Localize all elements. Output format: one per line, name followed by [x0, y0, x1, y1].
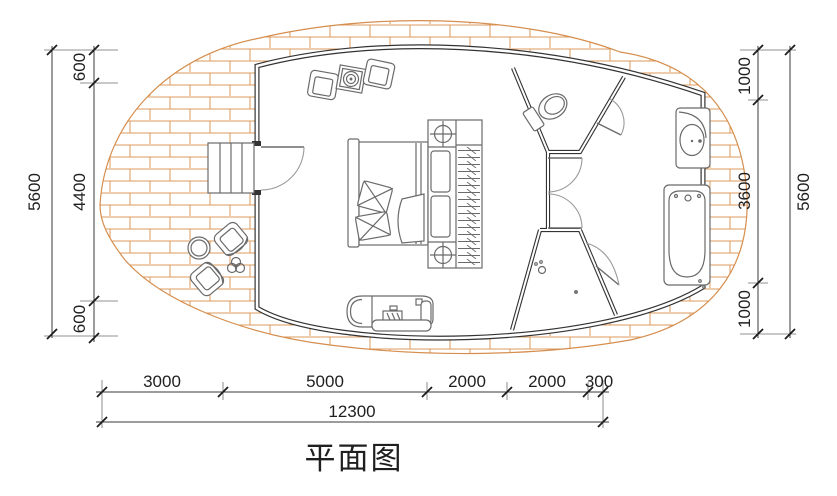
dim-right-seg-2: 3600 [735, 172, 754, 210]
floor-plan-drawing: 5600 600 4400 600 1000 3600 1000 5600 30… [0, 0, 837, 496]
bathtub-outline [664, 185, 710, 285]
dim-right-total: 5600 [794, 173, 813, 211]
wardrobe [428, 120, 482, 268]
basin-drain [691, 140, 693, 142]
floor-plan-page: 5600 600 4400 600 1000 3600 1000 5600 30… [0, 0, 837, 496]
armchair [307, 70, 339, 100]
bed [348, 139, 428, 247]
armchair [363, 58, 396, 89]
pillow [355, 211, 391, 240]
dim-bottom-seg-3: 2000 [448, 372, 486, 391]
dim-left-total: 5600 [25, 173, 44, 211]
dim-left-seg-1: 600 [70, 53, 89, 81]
dim-left-seg-3: 600 [70, 305, 89, 333]
drawing-title: 平面图 [305, 441, 404, 476]
counter-bench [347, 296, 433, 331]
bench-seat [372, 320, 431, 331]
dim-left-seg-2: 4400 [70, 173, 89, 211]
washbasin-counter [676, 108, 710, 168]
dim-bottom-seg-5: 300 [585, 372, 613, 391]
hanging-clothes-hatch [458, 147, 480, 265]
floor-drain [574, 290, 578, 294]
side-table [336, 65, 366, 93]
dim-bottom-seg-4: 2000 [528, 372, 566, 391]
bathtub [664, 185, 710, 288]
dim-right-seg-3: 1000 [735, 290, 754, 328]
basin-faucet [698, 139, 702, 143]
vanity-top [676, 108, 710, 168]
dim-right-seg-1: 1000 [735, 57, 754, 95]
dim-bottom-seg-2: 5000 [306, 372, 344, 391]
dim-bottom-total: 12300 [328, 402, 375, 421]
folded-blanket [398, 194, 424, 243]
entry-steps [208, 143, 254, 193]
dim-bottom-seg-1: 3000 [143, 372, 181, 391]
